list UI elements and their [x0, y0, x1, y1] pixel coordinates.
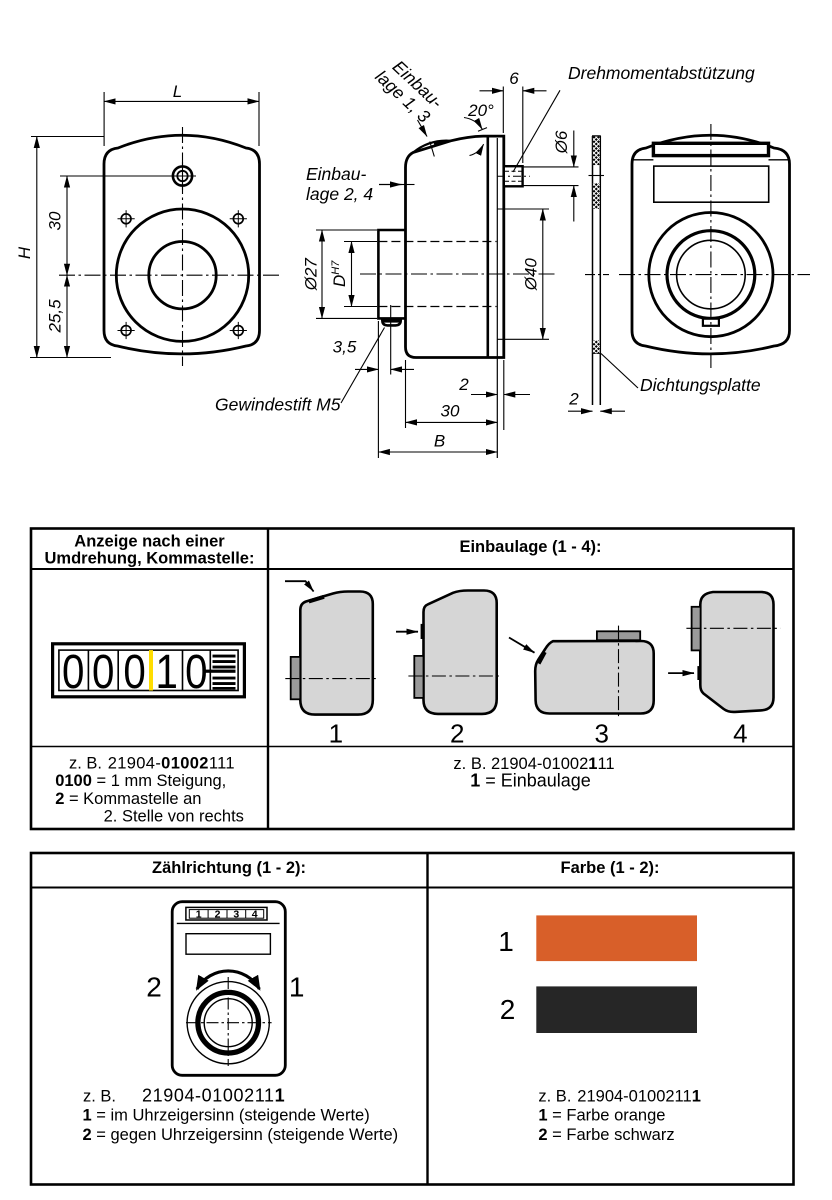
svg-text:3: 3: [233, 908, 239, 920]
svg-text:B: B: [434, 432, 445, 451]
svg-text:Drehmomentabstützung: Drehmomentabstützung: [568, 63, 755, 83]
svg-text:Einbaulage (1 - 4):: Einbaulage (1 - 4):: [459, 538, 601, 556]
svg-text:3,5: 3,5: [333, 338, 357, 357]
svg-text:H: H: [15, 246, 34, 259]
svg-text:0: 0: [92, 646, 114, 699]
svg-text:2 = Kommastelle an: 2 = Kommastelle an: [55, 790, 201, 808]
svg-text:21904-01002111: 21904-01002111: [142, 1086, 285, 1106]
svg-text:Einbau-: Einbau-: [306, 164, 366, 184]
svg-text:1: 1: [289, 972, 305, 1003]
svg-text:2 = gegen Uhrzeigersinn (steig: 2 = gegen Uhrzeigersinn (steigende Werte…: [83, 1126, 399, 1144]
svg-text:0: 0: [185, 646, 207, 699]
svg-text:Ø40: Ø40: [522, 258, 541, 292]
svg-text:z. B.: z. B.: [69, 755, 102, 773]
svg-text:2. Stelle von rechts: 2. Stelle von rechts: [104, 808, 244, 826]
svg-text:2: 2: [450, 719, 464, 749]
svg-text:0100 = 1 mm Steigung,: 0100 = 1 mm Steigung,: [55, 772, 226, 790]
svg-text:lage 2, 4: lage 2, 4: [306, 184, 373, 204]
svg-text:L: L: [173, 82, 182, 101]
svg-text:1 = im Uhrzeigersinn (steigend: 1 = im Uhrzeigersinn (steigende Werte): [83, 1107, 370, 1125]
svg-text:Anzeige nach einer: Anzeige nach einer: [74, 532, 225, 550]
svg-text:0: 0: [62, 646, 84, 699]
svg-text:Zählrichtung (1 - 2):: Zählrichtung (1 - 2):: [152, 859, 306, 877]
svg-text:2: 2: [500, 994, 516, 1025]
svg-text:Farbe (1 - 2):: Farbe (1 - 2):: [560, 859, 659, 877]
svg-text:0: 0: [123, 646, 145, 699]
svg-text:Dichtungsplatte: Dichtungsplatte: [640, 375, 761, 395]
svg-text:Umdrehung, Kommastelle:: Umdrehung, Kommastelle:: [45, 549, 255, 567]
svg-text:4: 4: [733, 719, 747, 749]
svg-text:3: 3: [594, 719, 608, 749]
svg-text:21904-01002111: 21904-01002111: [577, 1088, 701, 1106]
svg-text:Gewindestift M5: Gewindestift M5: [215, 395, 341, 415]
svg-text:Ø6: Ø6: [552, 130, 571, 154]
svg-text:1 = Farbe orange: 1 = Farbe orange: [538, 1107, 665, 1125]
svg-text:4: 4: [252, 908, 258, 920]
svg-text:25,5: 25,5: [46, 299, 65, 334]
svg-text:2: 2: [458, 375, 469, 394]
svg-text:21904-01002111: 21904-01002111: [108, 755, 235, 773]
svg-text:20°: 20°: [467, 101, 494, 120]
svg-text:z. B.: z. B.: [83, 1088, 116, 1106]
svg-text:2: 2: [146, 972, 162, 1003]
svg-text:30: 30: [46, 211, 65, 230]
svg-text:1: 1: [498, 926, 514, 957]
svg-text:1: 1: [329, 719, 343, 749]
svg-text:1 = Einbaulage: 1 = Einbaulage: [470, 770, 591, 790]
svg-text:2: 2: [215, 908, 221, 920]
svg-text:1: 1: [196, 908, 202, 920]
svg-text:2: 2: [568, 390, 579, 409]
svg-text:Ø27: Ø27: [302, 258, 321, 292]
svg-text:2 = Farbe schwarz: 2 = Farbe schwarz: [538, 1126, 674, 1144]
svg-text:30: 30: [441, 402, 460, 421]
svg-text:1: 1: [155, 646, 177, 699]
svg-text:z. B.: z. B.: [538, 1088, 571, 1106]
svg-text:6: 6: [509, 69, 519, 88]
